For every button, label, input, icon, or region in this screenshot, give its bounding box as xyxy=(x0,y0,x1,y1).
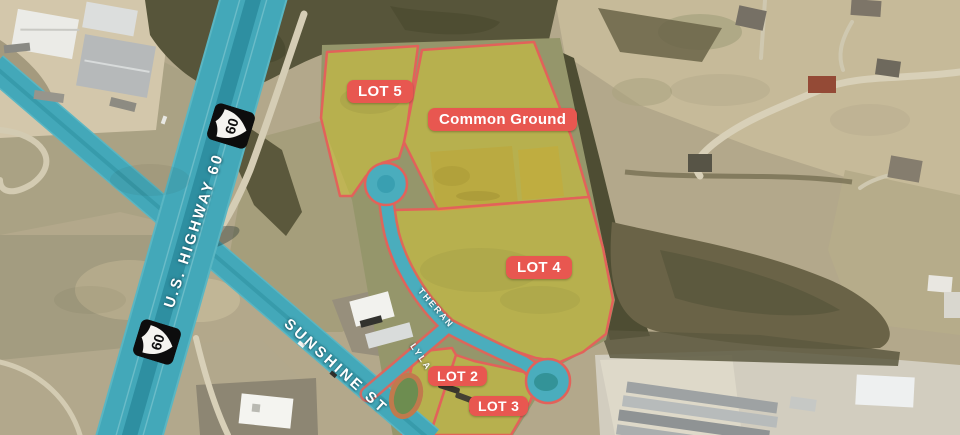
cul-de-sac-east xyxy=(526,359,570,403)
aerial-lot-map: U.S. HIGHWAY 60 SUNSHINE ST THERAN LYLA … xyxy=(0,0,960,435)
cul-de-sac-north xyxy=(365,163,407,205)
aerial-basemap xyxy=(0,0,960,435)
